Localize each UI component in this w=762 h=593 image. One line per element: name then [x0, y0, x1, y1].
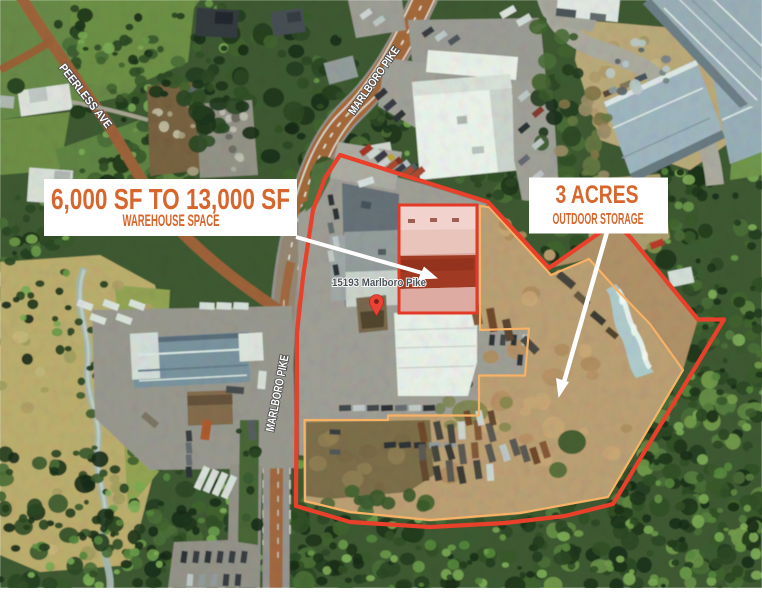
- svg-text:OUTDOOR STORAGE: OUTDOOR STORAGE: [553, 211, 644, 228]
- svg-text:WAREHOUSE SPACE: WAREHOUSE SPACE: [123, 211, 220, 230]
- svg-text:3 ACRES: 3 ACRES: [556, 181, 639, 209]
- svg-text:15193 Marlboro Pike: 15193 Marlboro Pike: [332, 277, 426, 289]
